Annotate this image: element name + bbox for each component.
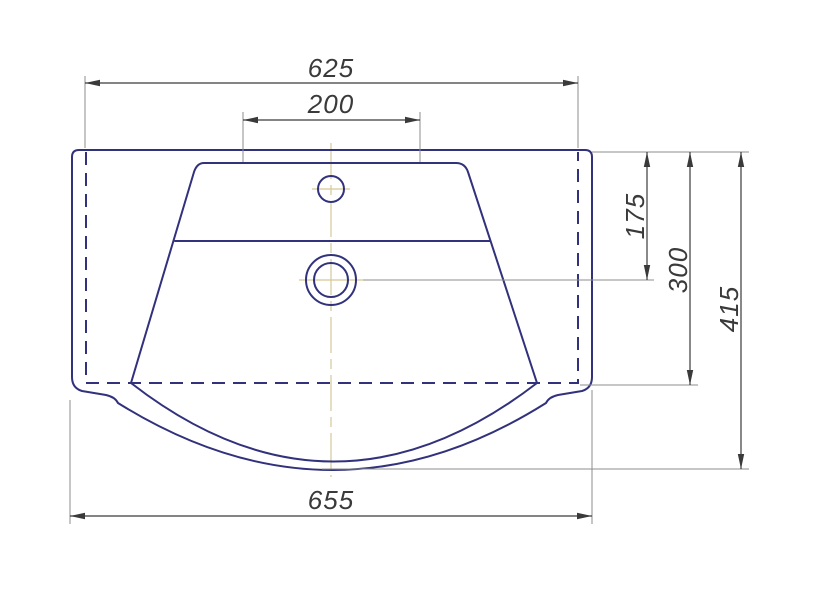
arrowhead-bottom xyxy=(687,370,693,385)
arrowhead-top xyxy=(687,152,693,167)
dimension-label: 625 xyxy=(308,53,354,83)
arrowhead-right xyxy=(577,513,592,519)
arrowhead-right xyxy=(563,80,578,86)
arrowhead-left xyxy=(85,80,100,86)
dimension-label: 655 xyxy=(308,485,354,515)
arrowhead-top xyxy=(644,152,650,167)
dimension-label: 200 xyxy=(307,89,354,119)
washbasin-technical-drawing: 625 200 655 175 xyxy=(0,0,820,616)
arrowhead-right xyxy=(405,117,420,123)
dimension-label: 300 xyxy=(663,247,693,293)
basin-outline xyxy=(131,163,537,462)
dimension-label: 175 xyxy=(620,193,650,239)
drawing-canvas: 625 200 655 175 xyxy=(0,0,820,616)
arrowhead-left xyxy=(70,513,85,519)
centerlines xyxy=(299,143,363,477)
arrowhead-top xyxy=(738,152,744,167)
washbasin-body xyxy=(72,150,592,470)
dimension-overall-depth: 415 xyxy=(322,152,749,469)
arrowhead-left xyxy=(243,117,258,123)
arrowhead-bottom xyxy=(644,265,650,280)
dimension-drain-offset: 175 xyxy=(363,152,654,280)
dimension-body-depth: 300 xyxy=(580,152,698,385)
dimension-label: 415 xyxy=(714,286,744,332)
hidden-edge-dashed xyxy=(86,152,578,383)
arrowhead-bottom xyxy=(738,454,744,469)
